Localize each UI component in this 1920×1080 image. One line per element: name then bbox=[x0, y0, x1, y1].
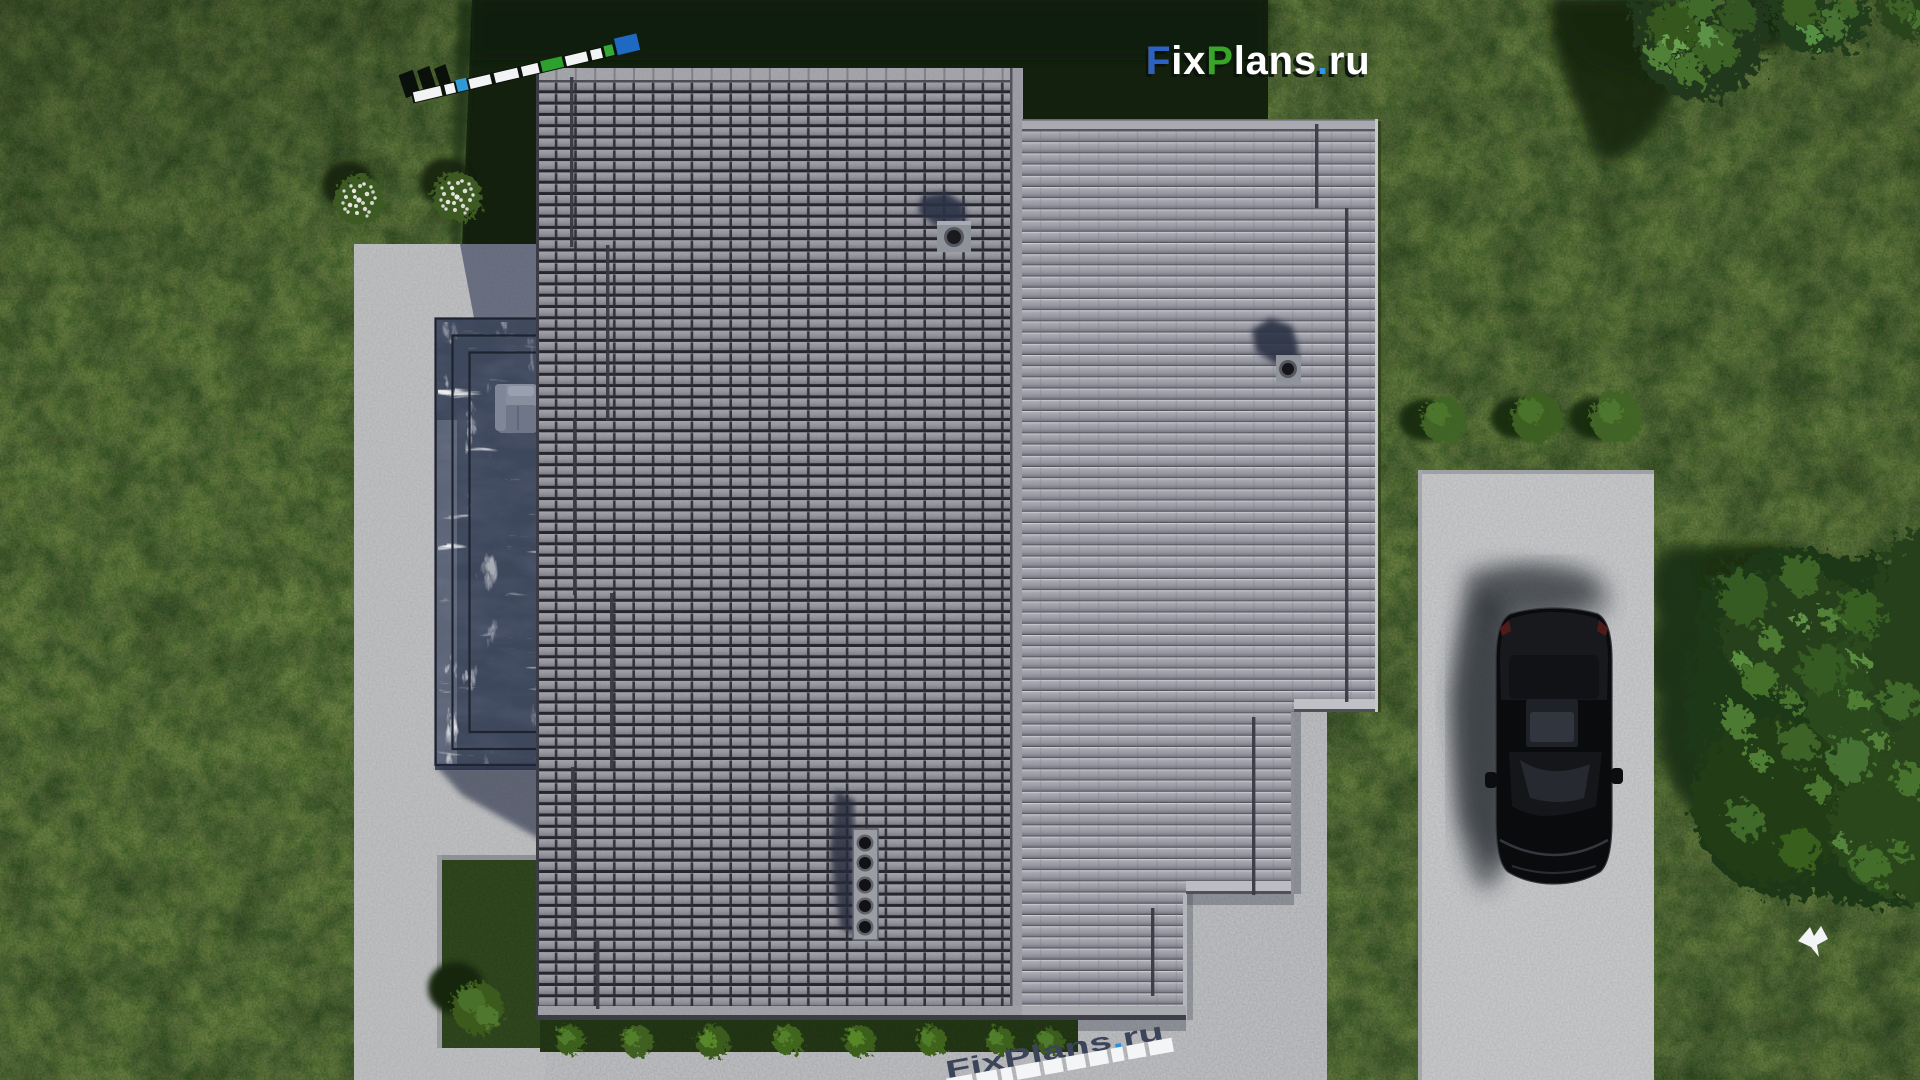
svg-text:F: F bbox=[1146, 39, 1171, 83]
svg-text:FixPlans.ru: FixPlans.ru bbox=[1146, 39, 1370, 83]
